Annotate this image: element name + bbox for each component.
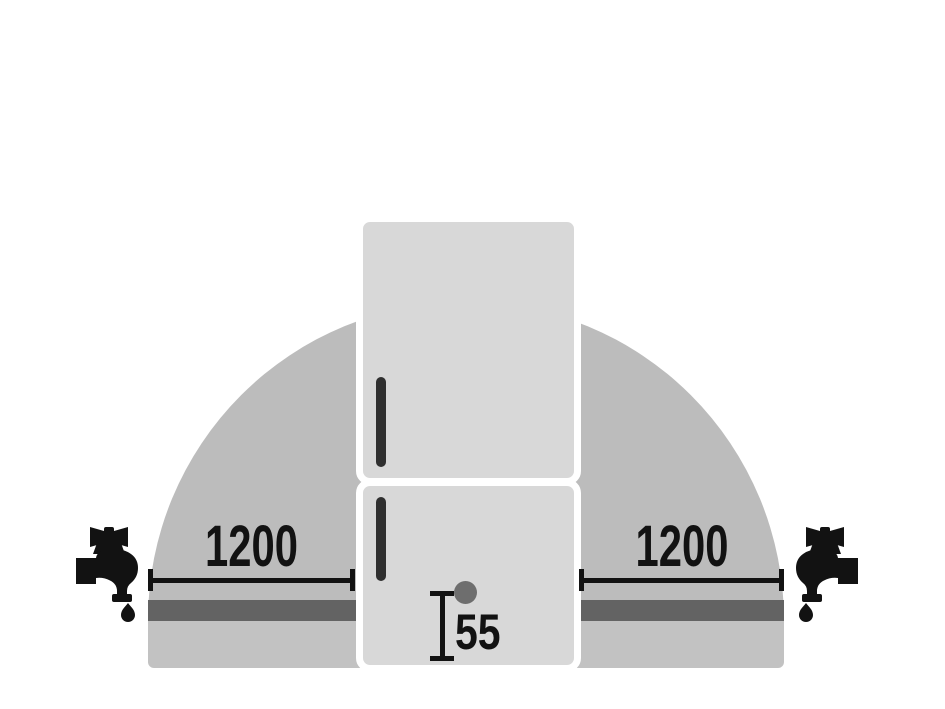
tap-spout-tip [802,594,822,602]
installation-diagram: 1200 1200 55 [0,0,945,709]
water-tap-icon [76,527,148,623]
water-tap-icon [786,527,858,623]
fridge-top-door-handle [376,377,386,467]
water-drop-icon [121,603,135,622]
tap-body-spout [76,549,138,596]
right-clearance-label: 1200 [609,524,754,570]
tap-body-spout [796,549,858,596]
water-inlet-dot [454,581,477,604]
dimension-tick [430,591,454,596]
fridge-bottom-door-handle [376,497,386,581]
dimension-tick [579,569,584,591]
inlet-height-label: 55 [455,611,501,653]
water-drop-icon [799,603,813,622]
tap-spout-tip [112,594,132,602]
fridge-top-door [356,215,581,485]
dimension-tick [148,569,153,591]
dimension-tick [779,569,784,591]
dimension-tick [350,569,355,591]
dimension-line [440,594,445,659]
left-clearance-label: 1200 [178,524,324,570]
dimension-tick [430,656,454,661]
